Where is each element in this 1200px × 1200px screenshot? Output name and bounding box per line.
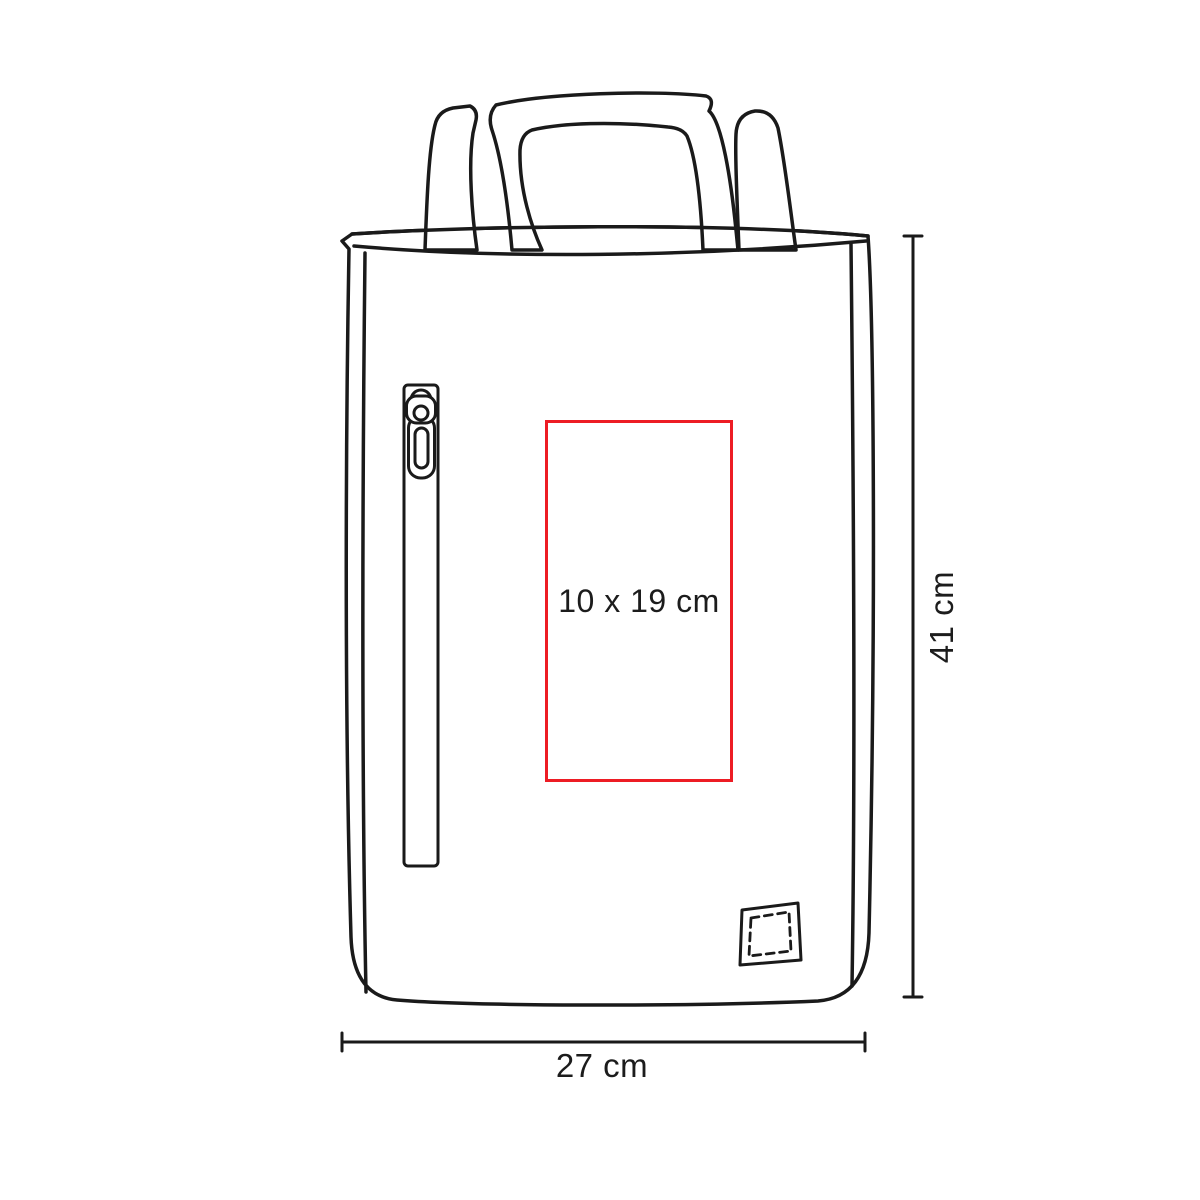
zipper-pull-slot <box>415 428 428 468</box>
width-dimension-label: 27 cm <box>502 1047 702 1085</box>
print-area-label: 10 x 19 cm <box>558 583 720 620</box>
stitched-label-patch-icon <box>740 903 801 965</box>
height-dimension-line <box>904 236 922 997</box>
zipper-attach-ring <box>414 406 428 420</box>
print-area-box: 10 x 19 cm <box>545 420 733 782</box>
zipper-pull-icon <box>404 385 438 866</box>
product-dimension-diagram: 10 x 19 cm 41 cm 27 cm <box>0 0 1200 1200</box>
height-dimension-label: 41 cm <box>922 555 962 679</box>
